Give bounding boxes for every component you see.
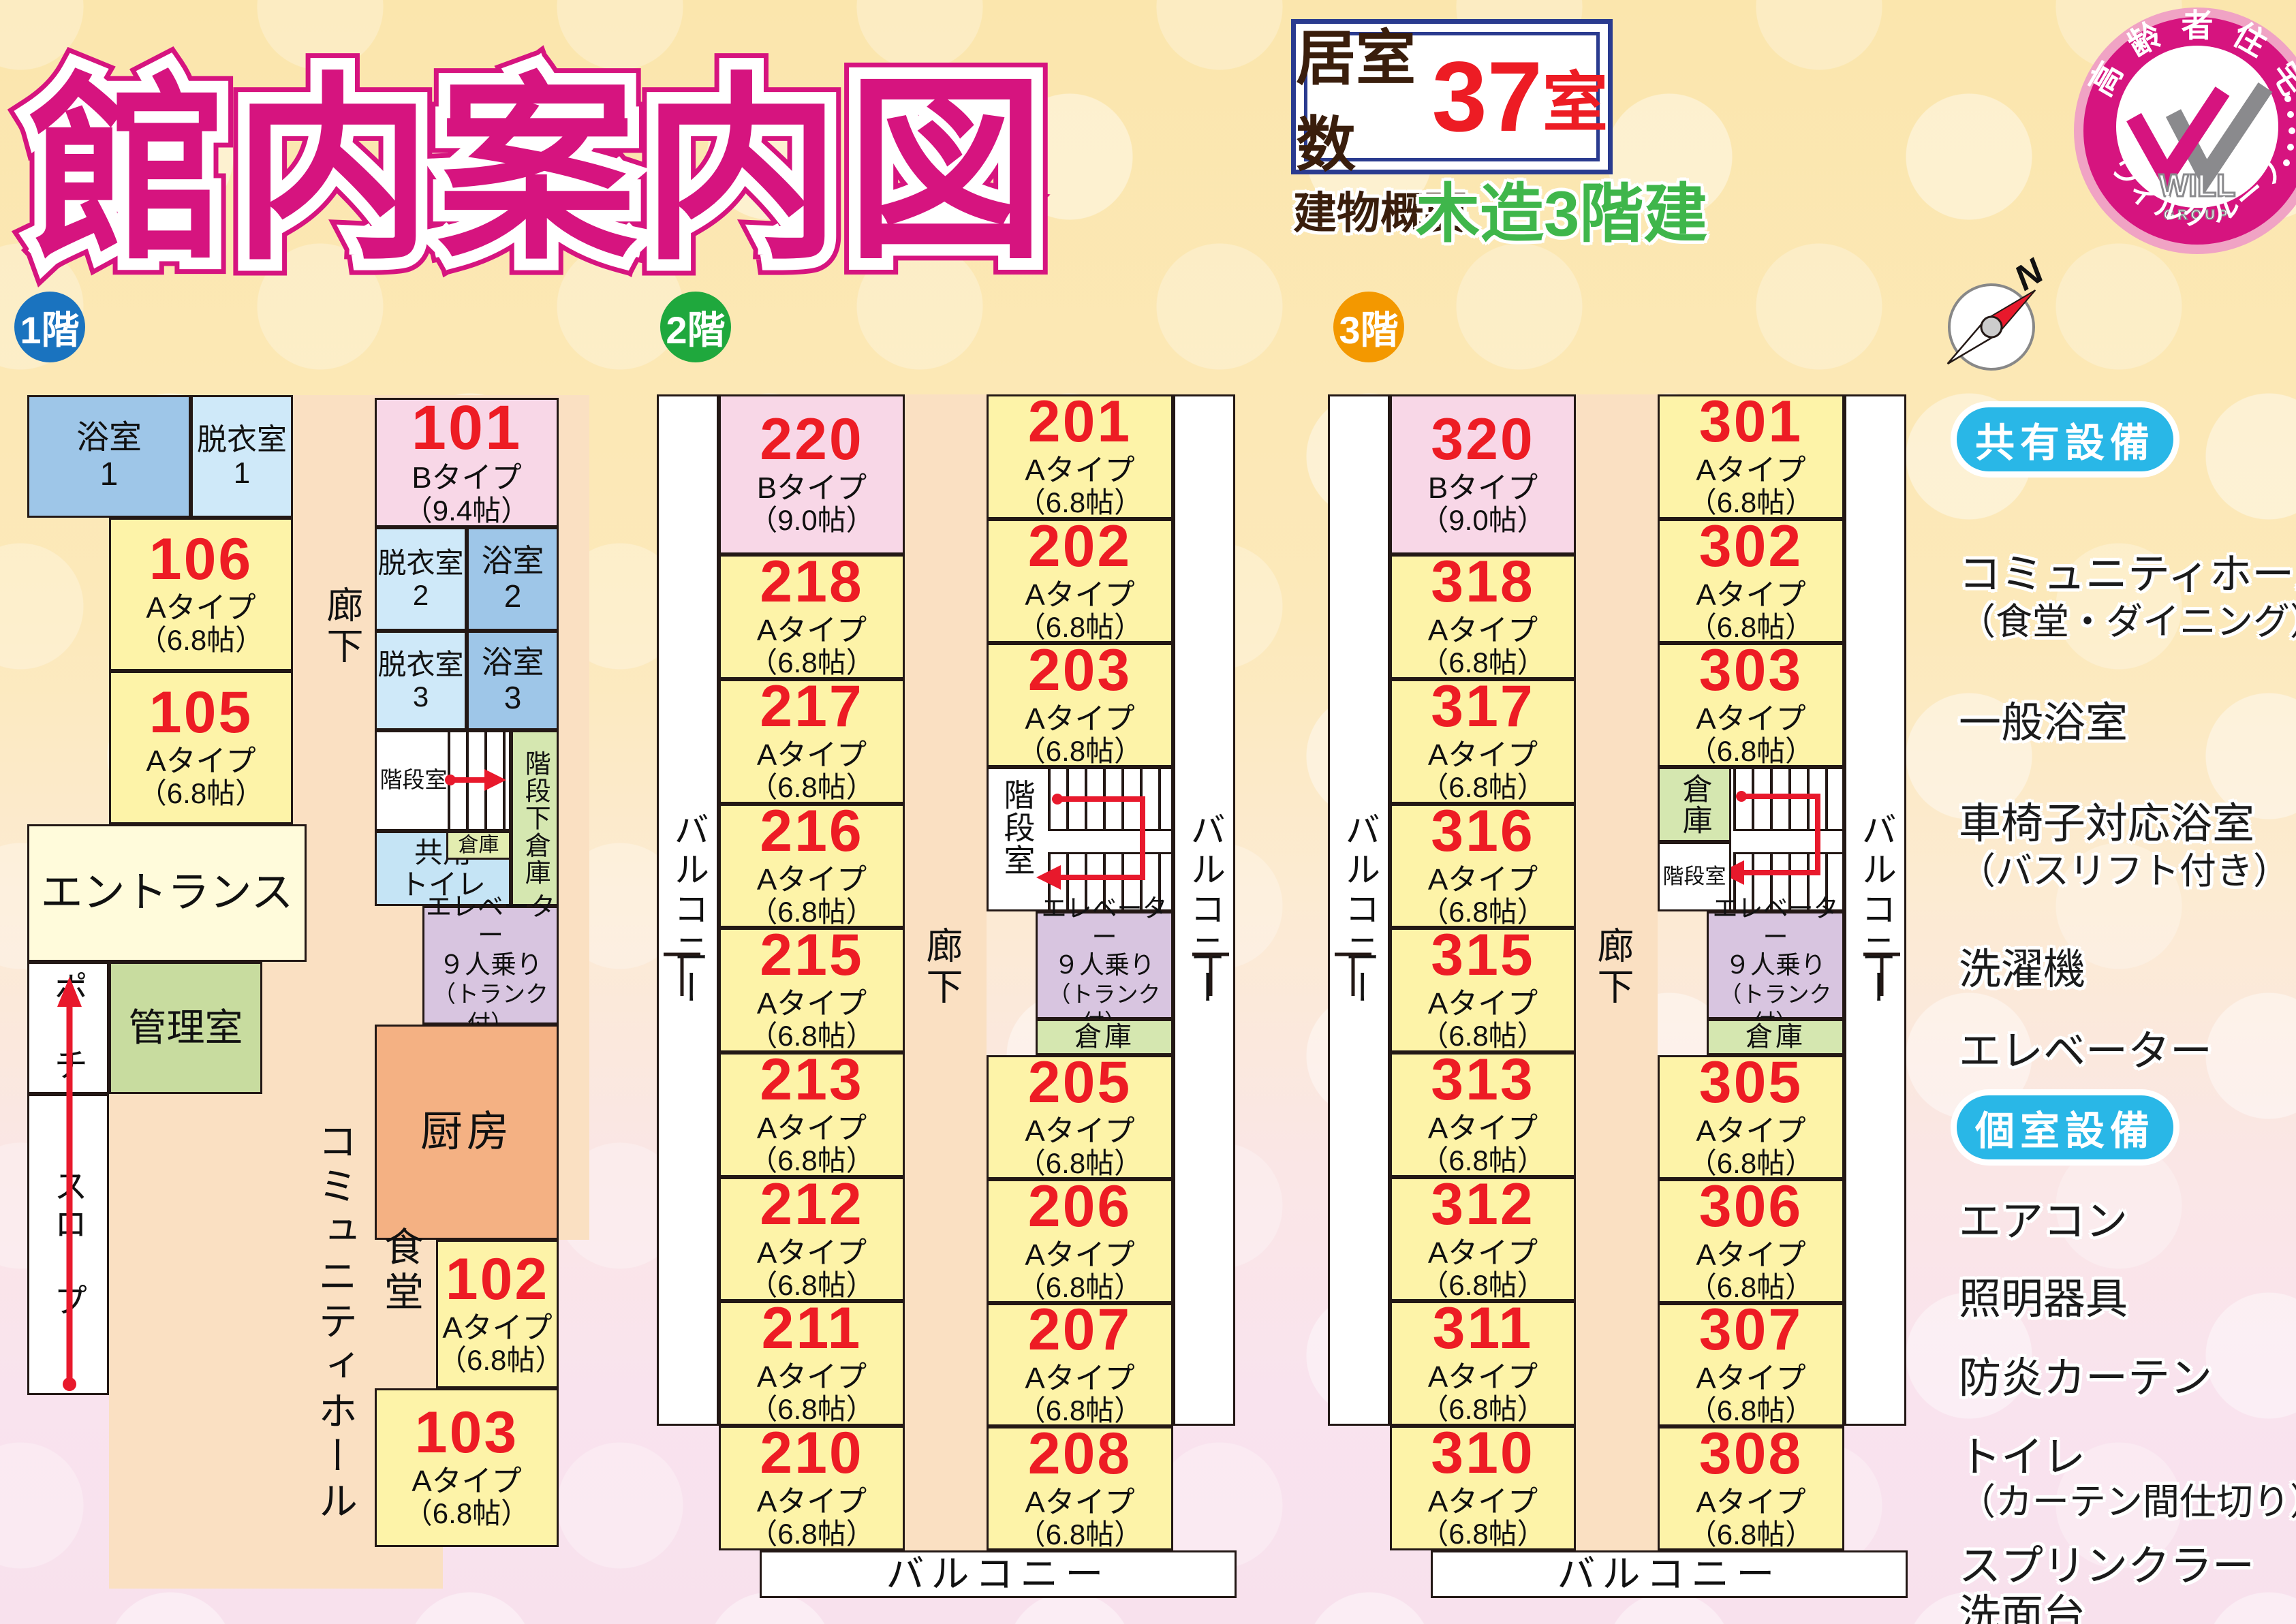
floor2-stair-arrow [989, 769, 1171, 909]
legend-item-aircon: エアコン [1959, 1187, 2128, 1248]
room-307: 307Aタイプ（6.8帖） [1658, 1303, 1844, 1426]
room-218: 218Aタイプ（6.8帖） [719, 555, 905, 679]
floor2-balcony-divider-right [1191, 952, 1230, 997]
floor3-balcony-divider-right [1862, 952, 1902, 997]
floor3-stair-storage: 倉庫 [1658, 767, 1731, 842]
room-315: 315Aタイプ（6.8帖） [1390, 928, 1576, 1052]
room-302: 302Aタイプ（6.8帖） [1658, 519, 1844, 643]
undress-room-2: 脱衣室2 [375, 527, 467, 631]
legend-item-community-hall-sub: （食堂・ダイニング） [1959, 591, 2296, 645]
room-308: 308Aタイプ（6.8帖） [1658, 1426, 1844, 1550]
shared-facilities-pill: 共有設備 [1957, 407, 2173, 471]
room-212: 212Aタイプ（6.8帖） [719, 1177, 905, 1301]
floor3-elevator: エレベーター９人乗り（トランク付） [1707, 911, 1844, 1019]
room-318: 318Aタイプ（6.8帖） [1390, 555, 1576, 679]
room-207: 207Aタイプ（6.8帖） [987, 1303, 1173, 1426]
room-313: 313Aタイプ（6.8帖） [1390, 1052, 1576, 1177]
floor2-plan: 廊下 バルコニー バルコニー 220Bタイプ（9.0帖） 218Aタイプ（6.8… [634, 381, 1288, 1608]
room-count-label: 居室数 [1296, 10, 1423, 183]
room-312: 312Aタイプ（6.8帖） [1390, 1177, 1576, 1301]
floor1-badge: 1階 [14, 292, 85, 362]
room-311: 311Aタイプ（6.8帖） [1390, 1301, 1576, 1426]
floor1-dining-label: 食堂 [371, 1226, 429, 1316]
room-217: 217Aタイプ（6.8帖） [719, 679, 905, 804]
room-303: 303Aタイプ（6.8帖） [1658, 643, 1844, 767]
legend-item-fire-curtain: 防炎カーテン [1959, 1343, 2212, 1405]
room-203: 203Aタイプ（6.8帖） [987, 643, 1173, 767]
room-316: 316Aタイプ（6.8帖） [1390, 804, 1576, 928]
legend-item-washing-machine: 洗濯機 [1959, 935, 2085, 996]
room-310: 310Aタイプ（6.8帖） [1390, 1426, 1576, 1550]
floor1-stair-arrow [377, 732, 510, 829]
floor1-stair-room: 階段室 [375, 730, 511, 831]
room-208: 208Aタイプ（6.8帖） [987, 1426, 1173, 1550]
room-216: 216Aタイプ（6.8帖） [719, 804, 905, 928]
bath-room-2: 浴室2 [467, 527, 559, 631]
room-201: 201Aタイプ（6.8帖） [987, 394, 1173, 519]
room-213: 213Aタイプ（6.8帖） [719, 1052, 905, 1177]
floor2-stair-room: 階段室 [987, 767, 1173, 911]
floor2-balcony-divider-left [662, 952, 702, 997]
floor3-corridor-label: 廊下 [1585, 926, 1639, 1008]
kitchen-area: 厨房 [375, 1025, 559, 1240]
floor3-balcony-bottom: バルコニー [1431, 1550, 1908, 1598]
bath-room-1: 浴室1 [27, 395, 191, 518]
floor2-elevator: エレベーター９人乗り（トランク付） [1036, 911, 1173, 1019]
floor2-corridor-label: 廊下 [914, 926, 968, 1008]
floor3-balcony-divider-left [1333, 952, 1373, 997]
room-211: 211Aタイプ（6.8帖） [719, 1301, 905, 1426]
legend-item-washstand: 洗面台 [1959, 1580, 2085, 1624]
room-101: 101 Bタイプ （9.4帖） [375, 398, 559, 527]
floor1-plan: 浴室1 脱衣室1 106 Aタイプ （6.8帖） 105 Aタイプ （6.8帖）… [0, 381, 637, 1601]
room-215: 215Aタイプ（6.8帖） [719, 928, 905, 1052]
floor2-balcony-bottom: バルコニー [760, 1550, 1237, 1598]
room-317: 317Aタイプ（6.8帖） [1390, 679, 1576, 804]
floor3-badge: 3階 [1333, 292, 1404, 362]
legend-item-toilet-sub: （カーテン間仕切り） [1959, 1471, 2296, 1525]
room-106: 106 Aタイプ （6.8帖） [109, 518, 293, 671]
legend-item-lighting: 照明器具 [1959, 1264, 2128, 1326]
slope-arrow [27, 967, 109, 1403]
floor2-badge: 2階 [660, 292, 731, 362]
will-group-badge: WILL GROUP 高 齢 者 住 宅 ウ ィ ル グ ル ー プ [2071, 4, 2296, 257]
page-title: 館内案内図 [29, 10, 1255, 298]
undress-room-3: 脱衣室3 [375, 631, 467, 730]
svg-text:者: 者 [2182, 7, 2214, 44]
room-105: 105 Aタイプ （6.8帖） [109, 671, 293, 824]
entrance-area: エントランス [27, 824, 307, 962]
compass-icon: N [1932, 253, 2061, 390]
floor3-balcony-right: バルコニー [1844, 394, 1906, 1426]
floor1-hall-label: コミュニティホール [305, 1121, 362, 1525]
room-306: 306Aタイプ（6.8帖） [1658, 1179, 1844, 1303]
floor-guide-poster: 館内案内図 館内案内図 館内案内図 居室数 37 室 建物概要 木造3階建 WI… [0, 0, 2296, 1624]
room-205: 205Aタイプ（6.8帖） [987, 1055, 1173, 1179]
room-count-box: 居室数 37 室 [1291, 19, 1613, 174]
floor2-balcony-right: バルコニー [1173, 394, 1235, 1426]
room-202: 202Aタイプ（6.8帖） [987, 519, 1173, 643]
room-count-unit: 室 [1542, 50, 1608, 144]
legend-item-general-bath: 一般浴室 [1959, 688, 2128, 749]
room-320: 320Bタイプ（9.0帖） [1390, 394, 1576, 555]
room-301: 301Aタイプ（6.8帖） [1658, 394, 1844, 519]
floor1-corridor-label: 廊下 [315, 586, 369, 668]
room-103: 103 Aタイプ （6.8帖） [375, 1388, 559, 1547]
room-count-value: 37 [1432, 40, 1542, 154]
floor3-plan: 廊下 バルコニー バルコニー 320Bタイプ（9.0帖） 318Aタイプ（6.8… [1305, 381, 1959, 1608]
floor1-under-stair-storage: 階段下倉庫 [511, 730, 559, 906]
room-206: 206Aタイプ（6.8帖） [987, 1179, 1173, 1303]
building-overview-value: 木造3階建 [1416, 162, 1707, 255]
bath-room-3: 浴室3 [467, 631, 559, 730]
floor3-balcony-left: バルコニー [1328, 394, 1390, 1426]
room-220: 220Bタイプ（9.0帖） [719, 394, 905, 555]
office-area: 管理室 [109, 962, 262, 1094]
room-210: 210Aタイプ（6.8帖） [719, 1426, 905, 1550]
floor2-balcony-left: バルコニー [657, 394, 719, 1426]
legend-item-wheelchair-bath-sub: （バスリフト付き） [1959, 841, 2290, 894]
legend-item-elevator: エレベーター [1959, 1016, 2212, 1078]
room-102: 102 Aタイプ （6.8帖） [436, 1240, 559, 1388]
room-305: 305Aタイプ（6.8帖） [1658, 1055, 1844, 1179]
private-facilities-pill: 個室設備 [1957, 1095, 2173, 1159]
floor1-storage-small: 倉庫 [446, 831, 511, 860]
floor1-elevator: エレベーター９人乗り（トランク付） [422, 906, 559, 1025]
undress-room-1: 脱衣室1 [191, 395, 293, 518]
